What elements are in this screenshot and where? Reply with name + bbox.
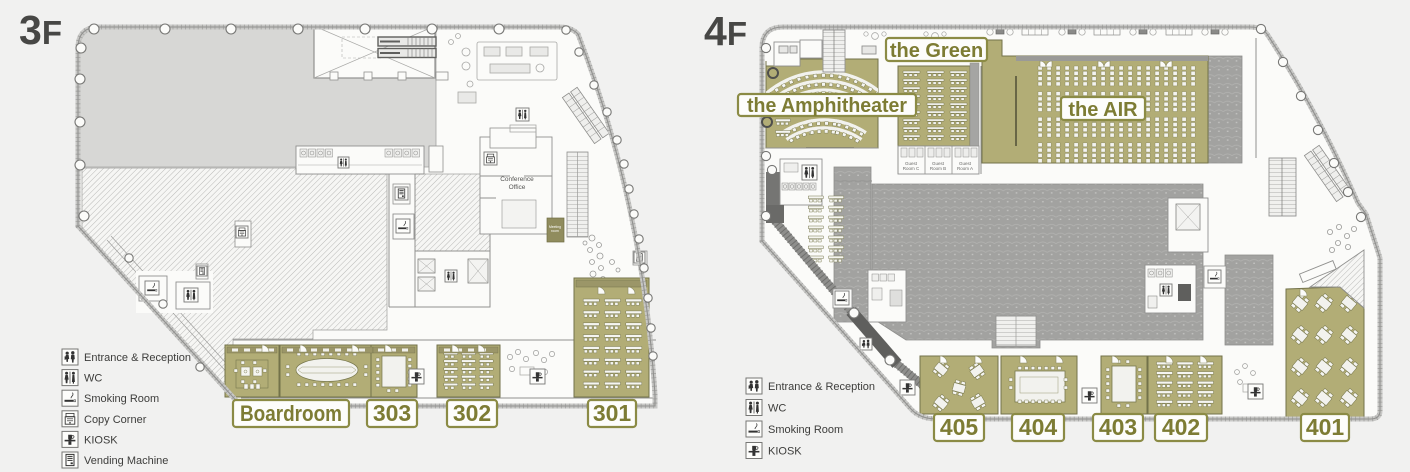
svg-text:303: 303: [373, 400, 411, 426]
svg-text:301: 301: [593, 400, 632, 426]
svg-text:402: 402: [1162, 414, 1200, 440]
svg-text:Copy Corner: Copy Corner: [84, 414, 147, 426]
svg-text:Entrance & Reception: Entrance & Reception: [768, 381, 875, 393]
svg-text:Boardroom: Boardroom: [240, 401, 342, 426]
svg-text:Room B: Room B: [930, 166, 946, 171]
svg-text:3F: 3F: [19, 7, 62, 53]
svg-text:405: 405: [940, 414, 979, 440]
svg-text:KIOSK: KIOSK: [84, 434, 118, 446]
svg-text:the Green: the Green: [890, 40, 983, 62]
svg-text:WC: WC: [768, 403, 786, 415]
svg-text:Office: Office: [509, 184, 526, 191]
svg-text:Smoking Room: Smoking Room: [84, 393, 159, 405]
svg-text:the AIR: the AIR: [1068, 99, 1138, 121]
svg-text:404: 404: [1019, 414, 1058, 440]
svg-text:Room A: Room A: [957, 166, 973, 171]
svg-text:Room C: Room C: [903, 166, 920, 171]
svg-text:the Amphitheater: the Amphitheater: [747, 95, 907, 117]
svg-text:4F: 4F: [704, 8, 747, 54]
svg-text:Conference: Conference: [500, 176, 534, 183]
svg-text:KIOSK: KIOSK: [768, 446, 802, 458]
svg-text:Smoking Room: Smoking Room: [768, 424, 843, 436]
svg-text:Entrance & Reception: Entrance & Reception: [84, 352, 191, 364]
svg-text:room: room: [551, 229, 559, 233]
svg-text:401: 401: [1306, 414, 1345, 440]
svg-text:Vending Machine: Vending Machine: [84, 455, 168, 467]
svg-text:WC: WC: [84, 373, 102, 385]
svg-text:302: 302: [453, 400, 491, 426]
svg-text:403: 403: [1099, 414, 1137, 440]
